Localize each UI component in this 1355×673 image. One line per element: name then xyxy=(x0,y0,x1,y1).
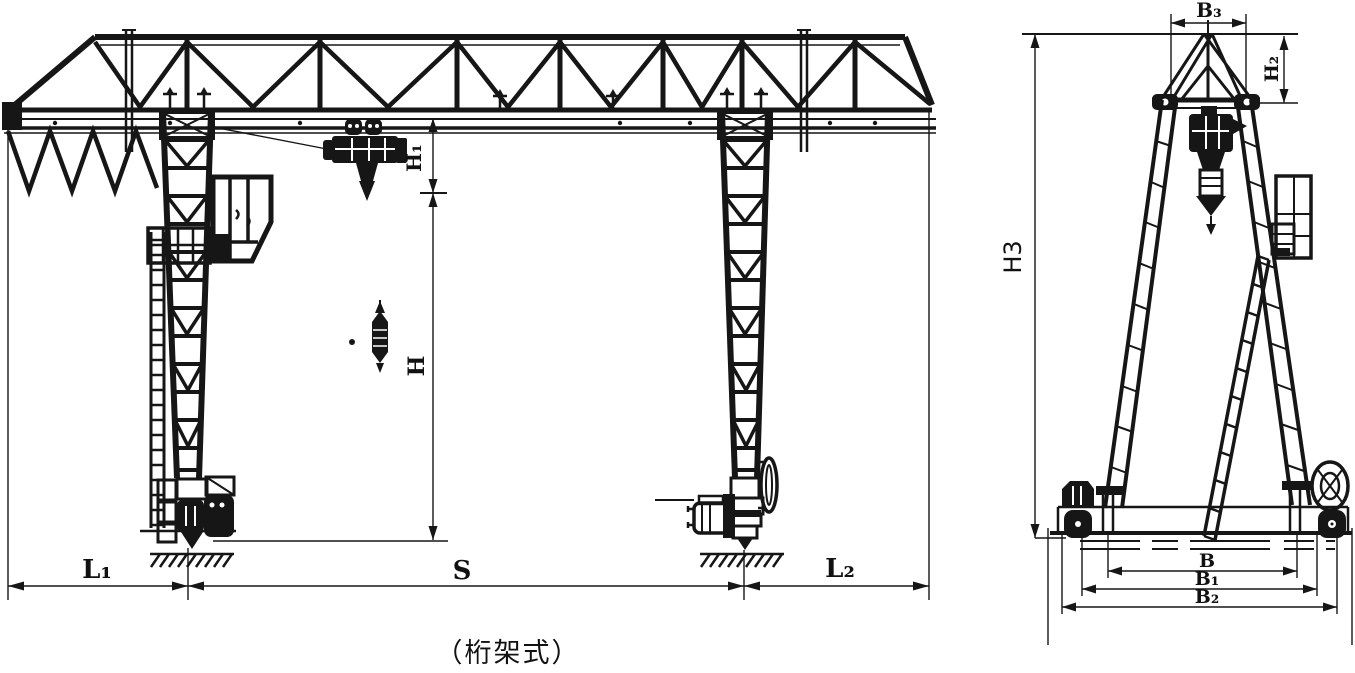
dim-label-l2: L₂ xyxy=(825,554,855,584)
operator-cab xyxy=(205,177,271,261)
hook-lowered xyxy=(349,300,388,373)
side-elevation: B₃ H₂ H3 xyxy=(999,0,1352,645)
front-elevation: H₁ H L₁ S L₂ xyxy=(2,30,936,600)
right-leg xyxy=(719,87,771,478)
caption: （桁架式） xyxy=(436,638,581,669)
diagonal-stair xyxy=(1204,256,1269,540)
gantry-crane-technical-drawing: H₁ H L₁ S L₂ B₃ xyxy=(0,0,1355,673)
girder-truss xyxy=(2,30,936,152)
dimension-b-b1-b2: B B₁ B₂ xyxy=(1048,528,1352,645)
right-bogie xyxy=(655,458,784,567)
left-leg xyxy=(161,87,213,478)
hoist-trolley xyxy=(213,119,407,201)
dim-label-s: S xyxy=(453,556,472,586)
dimension-h3: H3 xyxy=(999,34,1066,538)
side-hoist xyxy=(1189,106,1247,235)
dim-label-h3: H3 xyxy=(999,240,1027,273)
cantilever-sawtooth xyxy=(8,131,157,191)
drawing-svg: H₁ H L₁ S L₂ B₃ xyxy=(0,0,1355,673)
dim-label-h: H xyxy=(404,356,430,377)
dim-label-b3: B₃ xyxy=(1196,0,1222,22)
dim-label-h2: H₂ xyxy=(1261,56,1283,82)
electrical-cabinet xyxy=(1272,176,1311,258)
dim-label-l1: L₁ xyxy=(82,555,112,585)
dimension-h2: H₂ xyxy=(1253,36,1298,103)
dim-label-b2: B₂ xyxy=(1195,586,1219,608)
dim-label-h1: H₁ xyxy=(402,144,426,172)
dimension-l1-s-l2: L₁ S L₂ xyxy=(8,108,929,600)
